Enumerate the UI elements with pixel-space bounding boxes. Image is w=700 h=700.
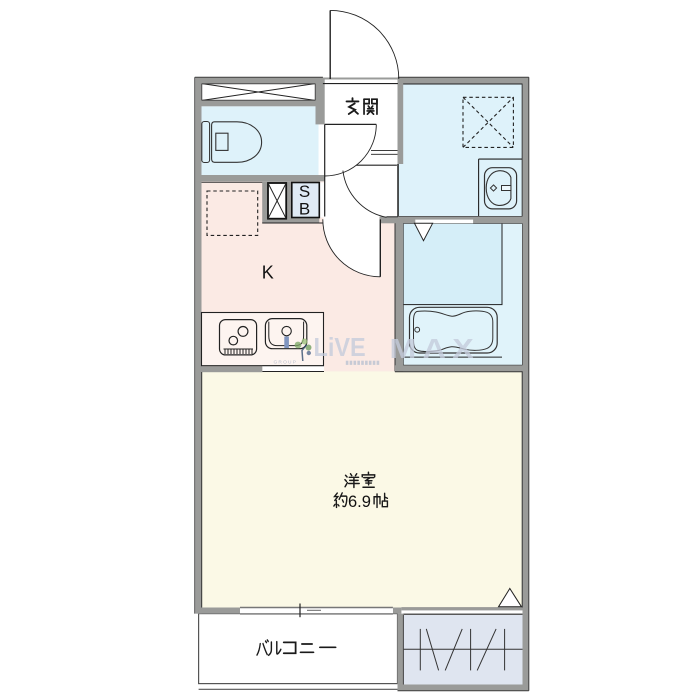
- svg-text:S: S: [299, 182, 310, 201]
- svg-text:B: B: [299, 200, 310, 219]
- svg-text:6.9: 6.9: [348, 493, 371, 511]
- svg-text:GROUP: GROUP: [274, 359, 298, 365]
- svg-text:MAX: MAX: [390, 334, 480, 365]
- svg-text:LiVE: LiVE: [314, 334, 366, 362]
- svg-text:K: K: [262, 262, 274, 282]
